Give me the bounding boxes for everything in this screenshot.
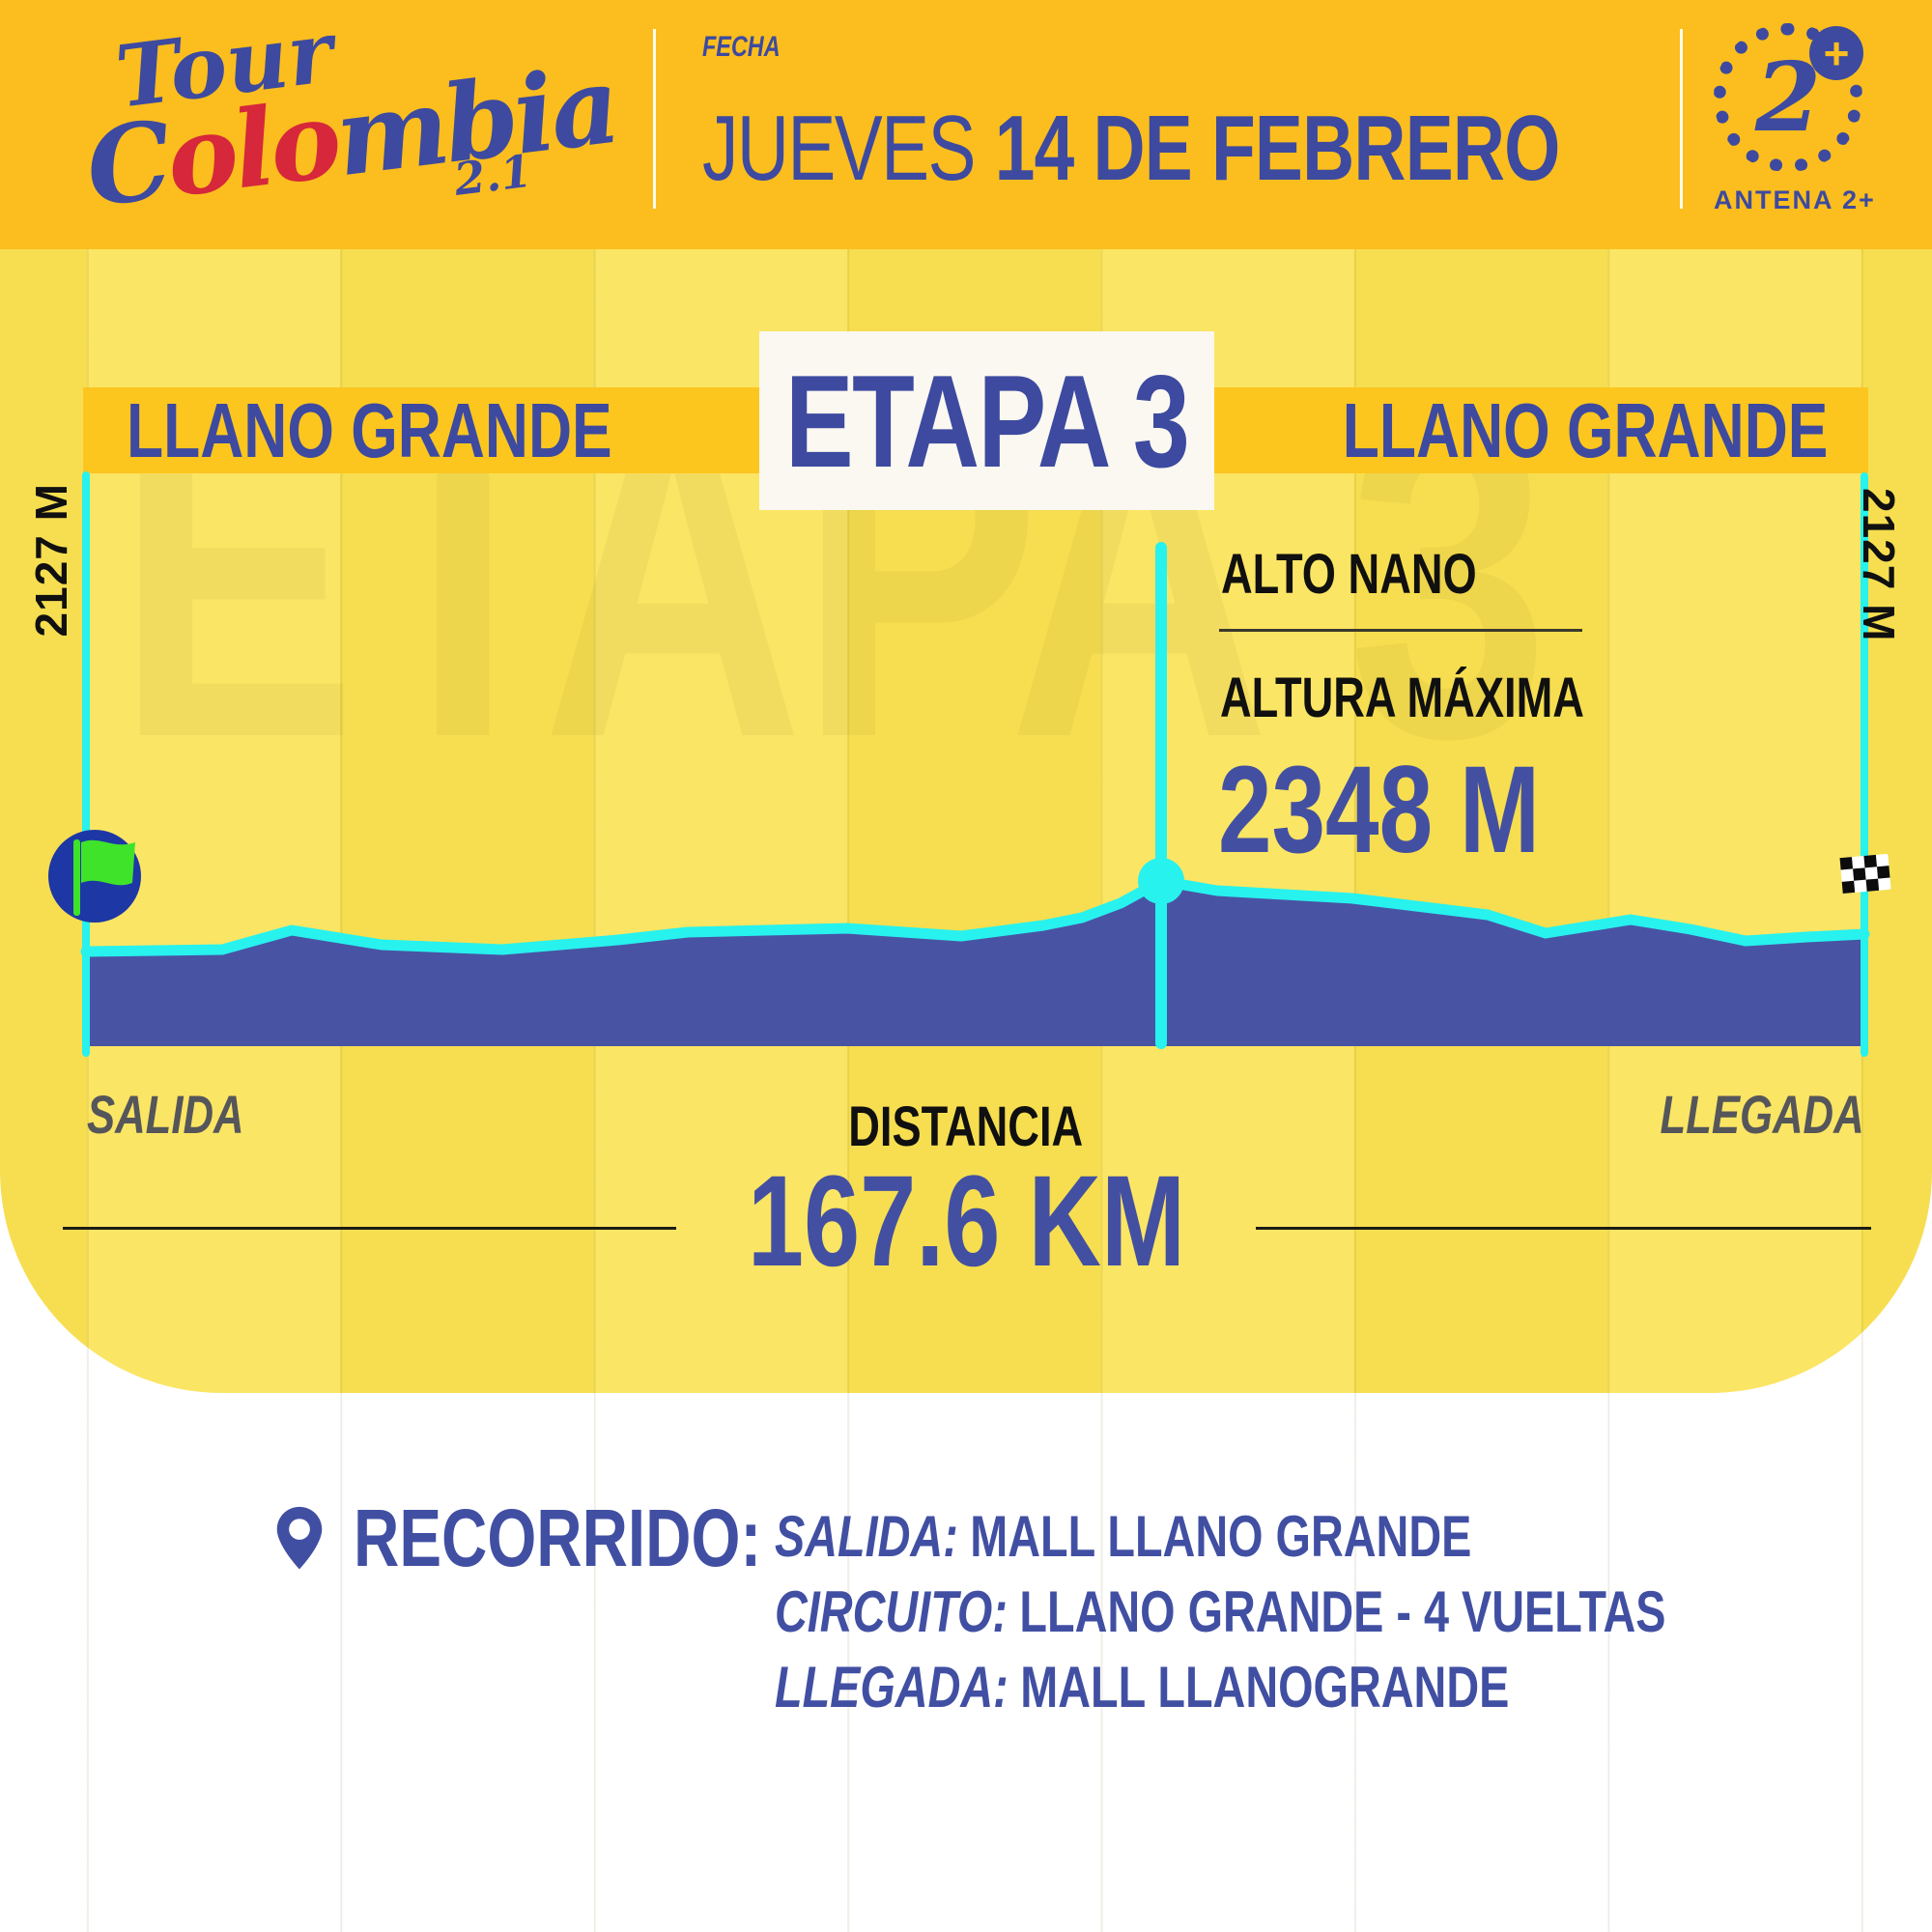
peak-divider-rule — [1219, 629, 1582, 632]
distance-label: DISTANCIA — [0, 1099, 1932, 1155]
route-start-label: SALIDA: — [775, 1504, 958, 1569]
route-circuit-label: CIRCUITO: — [775, 1579, 1008, 1644]
profile-area-fill — [86, 881, 1864, 1046]
route-finish-row: LLEGADA:MALL LLANOGRANDE — [775, 1650, 1918, 1725]
location-pin-icon — [270, 1503, 329, 1580]
peak-marker-dot — [1138, 858, 1184, 904]
route-start-row: SALIDA:MALL LLANO GRANDE — [775, 1499, 1918, 1575]
distance-value: 167.6 KM — [0, 1157, 1932, 1287]
start-elevation-label: 2127 M — [29, 483, 73, 637]
route-finish-label: LLEGADA: — [775, 1655, 1009, 1719]
route-details: SALIDA:MALL LLANO GRANDE CIRCUITO:LLANO … — [775, 1499, 1918, 1725]
finish-flag-icon — [1840, 854, 1891, 894]
route-finish-value: MALL LLANOGRANDE — [1020, 1655, 1509, 1719]
peak-value: 2348 M — [1218, 749, 1631, 872]
infographic-page: Tour Colombia 2.1 FECHA JUEVES 14 DE FEB… — [0, 0, 1932, 1932]
finish-elevation-label: 2127 M — [1857, 488, 1901, 641]
peak-caption: ALTURA MÁXIMA — [1220, 670, 1687, 726]
route-circuit-value: LLANO GRANDE - 4 VUELTAS — [1019, 1579, 1665, 1644]
distance-rule-right — [1256, 1227, 1871, 1230]
distance-rule-left — [63, 1227, 676, 1230]
peak-name: ALTO NANO — [1221, 547, 1548, 603]
route-start-value: MALL LLANO GRANDE — [970, 1504, 1471, 1569]
route-circuit-row: CIRCUITO:LLANO GRANDE - 4 VUELTAS — [775, 1575, 1918, 1650]
start-flag-icon — [48, 830, 141, 923]
